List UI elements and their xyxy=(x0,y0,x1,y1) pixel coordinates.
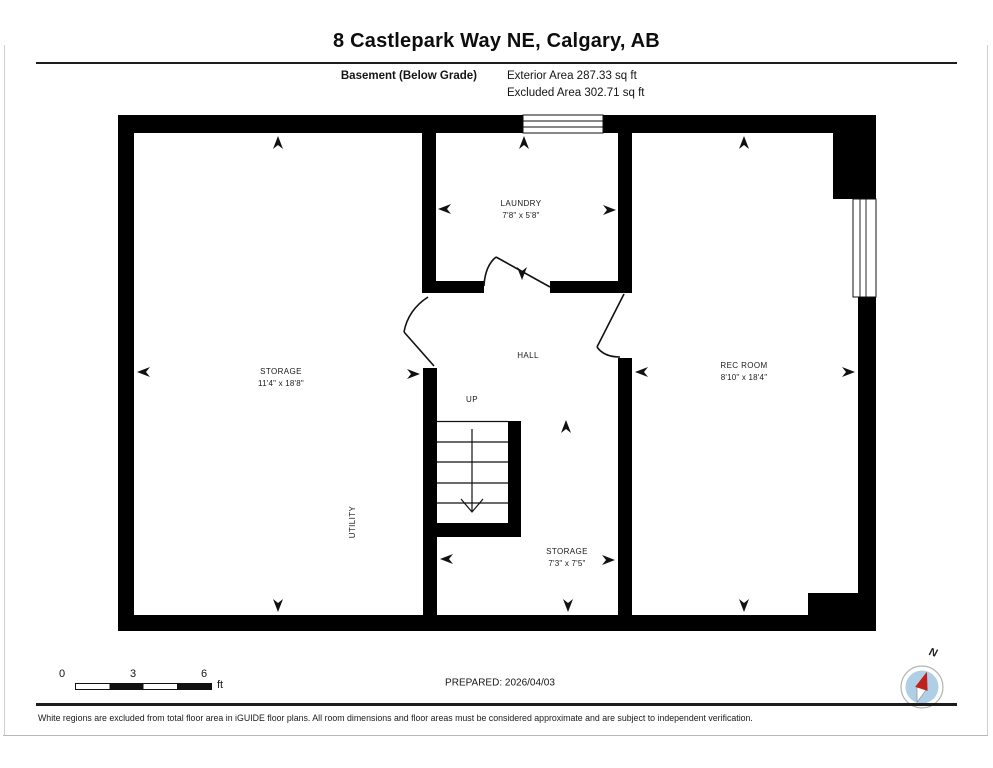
scale-tick-0: 0 xyxy=(59,668,65,680)
room-label-up: UP xyxy=(466,394,478,406)
measure-arrow-left-laundry xyxy=(438,204,451,214)
room-label-laundry: LAUNDRY 7'8" x 5'8" xyxy=(501,198,542,222)
floorplan-page: 8 Castlepark Way NE, Calgary, AB Basemen… xyxy=(0,0,993,768)
measure-arrow-down-recroom xyxy=(739,599,749,612)
footer-rule xyxy=(36,703,957,706)
room-name: LAUNDRY xyxy=(501,198,542,210)
measure-arrow-right-storage-bottom xyxy=(602,555,615,565)
room-dims: 11'4" x 18'8" xyxy=(258,378,304,390)
door-laundry xyxy=(484,257,550,287)
measure-arrow-up-laundry xyxy=(519,136,529,149)
door-storage xyxy=(404,297,434,366)
room-label-rec-room: REC ROOM 8'10" x 18'4" xyxy=(720,360,767,384)
room-dims: 7'8" x 5'8" xyxy=(501,210,542,222)
measure-arrow-left-recroom xyxy=(635,367,648,377)
measure-arrow-up-recroom xyxy=(739,136,749,149)
measure-arrow-down-storage xyxy=(273,599,283,612)
room-label-storage-bottom: STORAGE 7'3" x 7'5" xyxy=(546,546,588,570)
measure-arrow-right-laundry xyxy=(603,205,616,215)
measure-arrow-left-storage xyxy=(137,367,150,377)
measure-arrow-up-storage xyxy=(273,136,283,149)
doors xyxy=(404,257,624,366)
room-dims: 8'10" x 18'4" xyxy=(720,372,767,384)
room-name: STORAGE xyxy=(546,546,588,558)
room-name: STORAGE xyxy=(258,366,304,378)
prepared-date: PREPARED: 2026/04/03 xyxy=(445,678,555,689)
measure-arrow-up-hall xyxy=(561,420,571,433)
door-rec-room xyxy=(597,294,624,357)
room-dims: 7'3" x 7'5" xyxy=(546,558,588,570)
disclaimer-text: White regions are excluded from total fl… xyxy=(38,713,753,723)
room-label-storage-left: STORAGE 11'4" x 18'8" xyxy=(258,366,304,390)
measure-arrow-down-storage-bottom xyxy=(563,599,573,612)
room-label-hall: HALL xyxy=(517,350,539,362)
scale-tick-6: 6 xyxy=(201,668,207,680)
room-name: HALL xyxy=(517,350,539,362)
room-name: REC ROOM xyxy=(720,360,767,372)
measure-arrow-left-storage-bottom xyxy=(440,554,453,564)
room-label-utility: UTILITY xyxy=(347,506,359,539)
scale-tick-3: 3 xyxy=(130,668,136,680)
stairs xyxy=(437,422,508,513)
floorplan-drawing xyxy=(0,0,993,768)
scale-bar xyxy=(75,683,212,690)
room-name: UTILITY xyxy=(347,506,359,539)
window-top xyxy=(523,115,603,133)
scale-unit: ft xyxy=(217,679,223,691)
measure-arrow-right-recroom xyxy=(842,367,855,377)
room-name: UP xyxy=(466,394,478,406)
measure-arrow-right-storage xyxy=(407,369,420,379)
window-right xyxy=(853,199,876,297)
